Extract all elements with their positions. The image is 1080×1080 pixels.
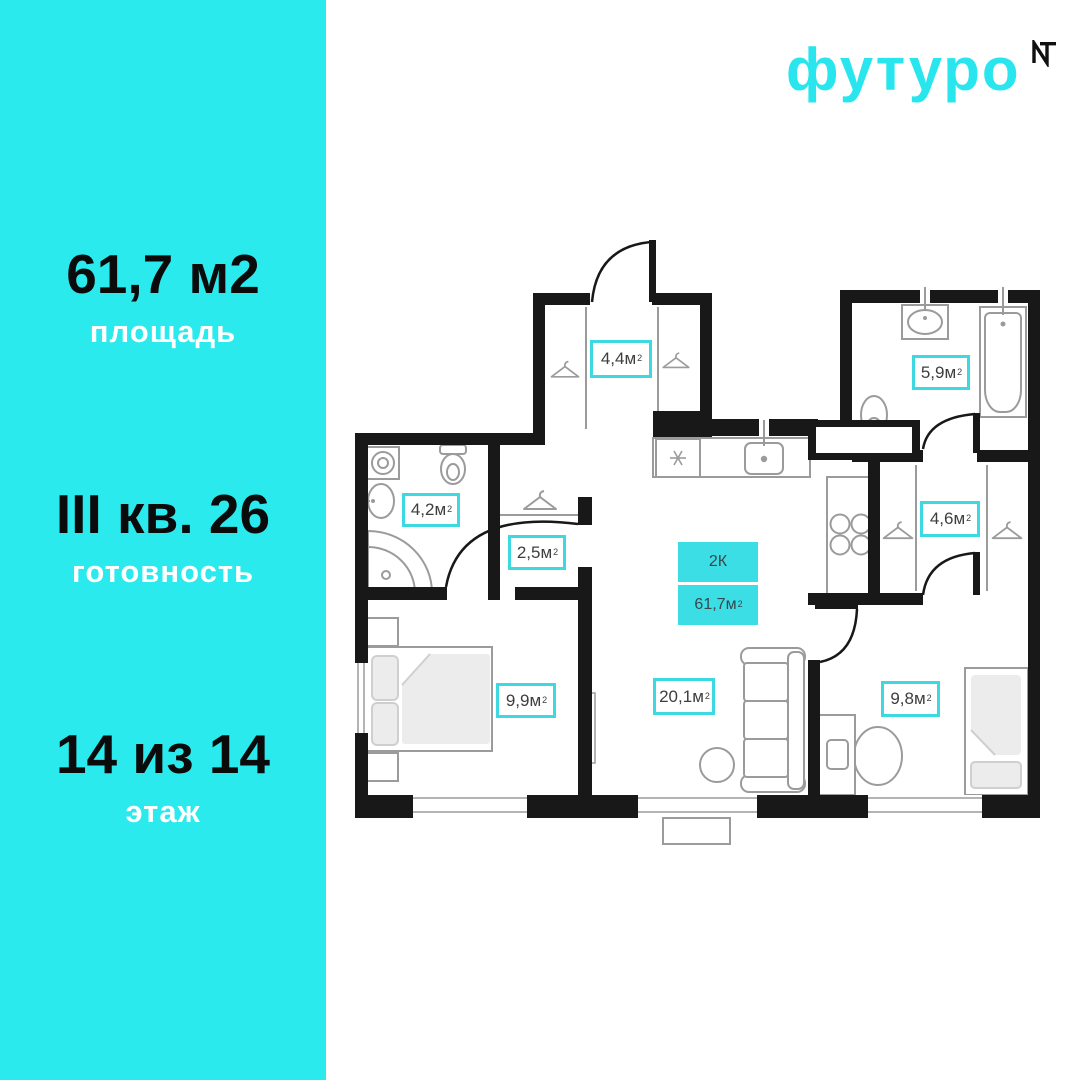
stat-readiness: III кв. 26 готовность [0, 486, 326, 590]
room-area-sup: 2 [553, 547, 558, 557]
round-table-icon [700, 748, 734, 782]
double-bed-icon [365, 618, 492, 781]
bathtub-icon [980, 287, 1026, 417]
room-area-unit: м [692, 687, 704, 707]
stat-area: 61,7 м2 площадь [0, 246, 326, 350]
room-area-value: 5,9 [921, 363, 945, 383]
room-area-sup: 2 [705, 691, 710, 701]
chair-icon [854, 727, 902, 785]
stat-area-label: площадь [0, 314, 326, 350]
door-leaf [973, 413, 980, 453]
desk-icon [818, 715, 855, 795]
sofa-icon [741, 648, 805, 792]
stat-floor-value: 14 из 14 [0, 726, 326, 784]
room-area-value: 9,9 [506, 691, 530, 711]
room-area-unit: м [624, 349, 636, 369]
room-area-value: 4,2 [411, 500, 435, 520]
balcony [663, 818, 730, 844]
room-label-bathroom-42: 4,2м2 [402, 493, 460, 527]
window [413, 795, 527, 818]
hanger-icon [663, 353, 689, 367]
stat-readiness-value: III кв. 26 [0, 486, 326, 544]
room-area-sup: 2 [542, 695, 547, 705]
shower-icon [368, 531, 432, 593]
apartment-area-value: 61,7 [694, 596, 725, 614]
room-area-unit: м [953, 509, 965, 529]
stat-floor-label: этаж [0, 794, 326, 830]
balcony-window [638, 795, 757, 818]
apartment-area-unit: м [726, 596, 737, 614]
hanger-icon [993, 522, 1022, 538]
room-area-sup: 2 [927, 693, 932, 703]
room-area-value: 20,1 [659, 687, 692, 707]
room-area-sup: 2 [637, 353, 642, 363]
apartment-total-area: 61,7м2 [678, 585, 758, 625]
room-area-sup: 2 [966, 513, 971, 523]
room-label-hallway-44: 4,4м2 [590, 340, 652, 378]
room-area-value: 9,8 [890, 689, 914, 709]
toilet-icon [440, 445, 466, 484]
wardrobe-door-arc [923, 553, 975, 595]
window [868, 795, 982, 818]
stat-area-value: 61,7 м2 [0, 246, 326, 304]
entry-door-arc [592, 242, 651, 302]
room-area-unit: м [540, 543, 552, 563]
room-door-arc [820, 609, 857, 662]
hanger-icon [524, 491, 556, 509]
bathroom-door-arc [923, 414, 975, 449]
room-label-hallway-25: 2,5м2 [508, 535, 566, 570]
info-sidebar: 61,7 м2 площадь III кв. 26 готовность 14… [0, 0, 326, 1080]
room-label-bathroom-59: 5,9м2 [912, 355, 970, 390]
stat-readiness-label: готовность [0, 554, 326, 590]
vent-duct [816, 427, 912, 453]
entry-door-leaf [649, 240, 656, 302]
room-label-room-98: 9,8м2 [881, 681, 940, 717]
room-area-sup: 2 [447, 504, 452, 514]
hanger-icon [884, 522, 913, 538]
room-label-living-201: 20,1м2 [653, 678, 715, 715]
apartment-type: 2К [678, 542, 758, 582]
room-area-unit: м [914, 689, 926, 709]
room-area-value: 2,5 [517, 543, 541, 563]
room-area-unit: м [944, 363, 956, 383]
room-area-unit: м [434, 500, 446, 520]
fridge-icon [656, 439, 700, 477]
room-label-wardrobe-46: 4,6м2 [920, 501, 980, 537]
door-leaf [973, 552, 980, 595]
room-area-value: 4,6 [930, 509, 954, 529]
floor-plan: 4,4м2 5,9м2 4,2м2 2,5м2 4,6м2 9,9м2 20,1… [350, 235, 1045, 850]
stat-floor: 14 из 14 этаж [0, 726, 326, 830]
washing-machine-icon [367, 447, 399, 479]
room-label-bedroom-99: 9,9м2 [496, 683, 556, 718]
hanger-icon [551, 362, 578, 377]
room-area-unit: м [529, 691, 541, 711]
room-area-sup: 2 [957, 367, 962, 377]
room-area-value: 4,4 [601, 349, 625, 369]
window [355, 663, 368, 733]
nt-monogram-icon [1031, 40, 1058, 72]
apartment-area-sup: 2 [738, 599, 743, 609]
door-leaf [815, 602, 858, 609]
brand-logo-text: футуро [786, 40, 1021, 100]
brand-logo: футуро [786, 40, 1058, 100]
single-bed-icon [965, 668, 1028, 795]
apartment-badge: 2К 61,7м2 [678, 542, 758, 625]
